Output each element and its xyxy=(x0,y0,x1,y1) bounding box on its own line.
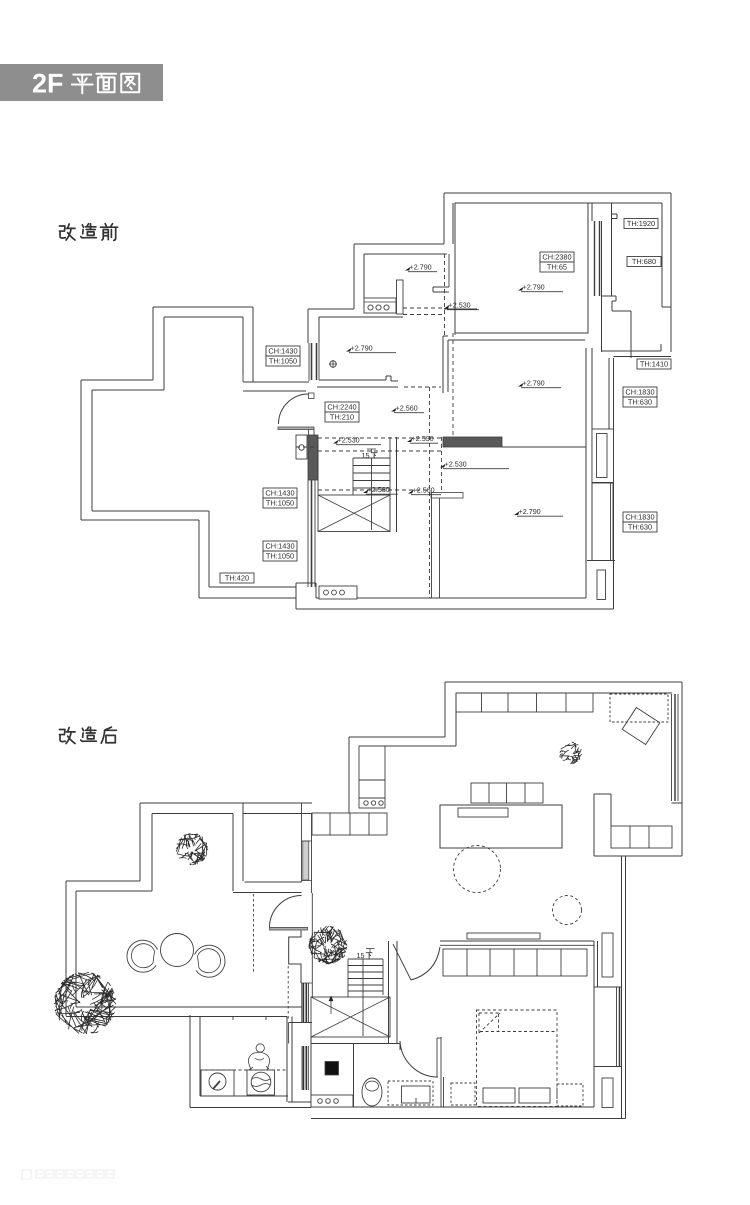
svg-text:+2.790: +2.790 xyxy=(351,344,373,353)
svg-text:TH:210: TH:210 xyxy=(330,413,354,422)
svg-text:CH:1430: CH:1430 xyxy=(265,542,294,551)
svg-text:+2.560: +2.560 xyxy=(368,485,390,494)
svg-text:CH:1830: CH:1830 xyxy=(625,388,654,397)
svg-text:CH:1430: CH:1430 xyxy=(268,347,297,356)
svg-text:TH:1920: TH:1920 xyxy=(627,219,655,228)
svg-text:+2.530: +2.530 xyxy=(412,434,434,443)
svg-text:2F: 2F xyxy=(32,69,64,99)
svg-text:CH:2240: CH:2240 xyxy=(327,403,356,412)
svg-text:+2.530: +2.530 xyxy=(338,436,360,445)
svg-text:CH:1830: CH:1830 xyxy=(625,513,654,522)
svg-text:TH:630: TH:630 xyxy=(628,398,652,407)
svg-text:+2.560: +2.560 xyxy=(396,404,418,413)
svg-text:15: 15 xyxy=(357,951,365,960)
svg-text:+2.790: +2.790 xyxy=(523,379,545,388)
svg-text:15: 15 xyxy=(362,451,370,460)
svg-text:TH:65: TH:65 xyxy=(547,263,567,272)
svg-text:+2.790: +2.790 xyxy=(410,263,432,272)
svg-text:TH:1410: TH:1410 xyxy=(640,360,668,369)
svg-text:CH:2380: CH:2380 xyxy=(542,253,571,262)
svg-text:+2.560: +2.560 xyxy=(413,486,435,495)
svg-text:+2.530: +2.530 xyxy=(445,460,467,469)
svg-text:TH:420: TH:420 xyxy=(225,574,249,583)
svg-text:TH:680: TH:680 xyxy=(632,257,656,266)
svg-text:+2.530: +2.530 xyxy=(449,301,471,310)
svg-text:TH:1050: TH:1050 xyxy=(269,357,297,366)
svg-text:TH:630: TH:630 xyxy=(628,523,652,532)
svg-text:TH:1050: TH:1050 xyxy=(266,552,294,561)
svg-text:+2.790: +2.790 xyxy=(523,283,545,292)
svg-text:CH:1430: CH:1430 xyxy=(265,489,294,498)
svg-text:TH:1050: TH:1050 xyxy=(266,499,294,508)
svg-text:+2.790: +2.790 xyxy=(519,507,541,516)
